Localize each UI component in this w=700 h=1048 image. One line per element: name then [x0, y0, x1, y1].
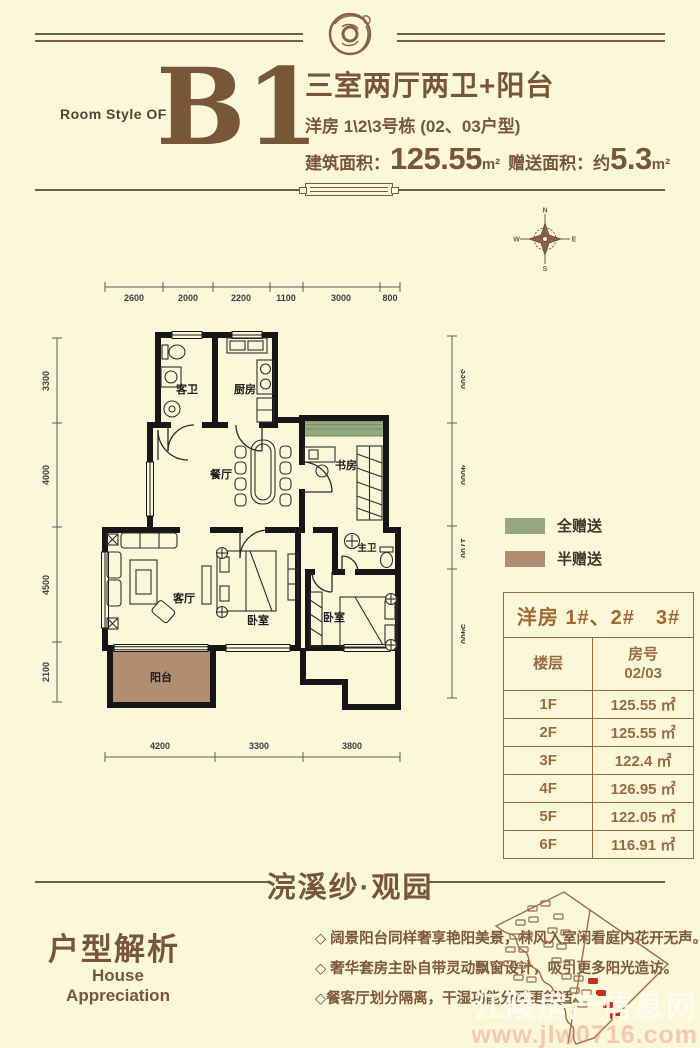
table-row: 4F 126.95 ㎡	[504, 775, 694, 803]
svg-text:4000: 4000	[459, 465, 465, 485]
svg-text:800: 800	[382, 293, 397, 303]
table-row: 2F 125.55 ㎡	[504, 719, 694, 747]
area-label: 建筑面积：	[305, 154, 390, 173]
room-label-dining: 餐厅	[209, 467, 232, 481]
room-label-study: 书房	[335, 458, 357, 472]
svg-text:4000: 4000	[41, 465, 51, 485]
compass-rose-icon: N E S W	[513, 206, 577, 272]
svg-text:4500: 4500	[41, 575, 51, 595]
door-swings	[158, 425, 358, 592]
svg-text:2600: 2600	[124, 293, 144, 303]
area-unit: m²	[482, 156, 500, 173]
col-header-room: 房号02/03	[593, 638, 694, 691]
compass-n: N	[542, 208, 547, 215]
gift-label: 赠送面积：	[508, 154, 593, 173]
watermark-url: www.jlw0716.com	[471, 1023, 698, 1048]
col-header-floor: 楼层	[504, 638, 593, 691]
dimension-labels: 2600 2000 2200 1100 3000 800 3300 4000 4…	[41, 293, 465, 751]
legend-half-gift: 半赠送	[505, 548, 602, 569]
svg-text:4200: 4200	[150, 741, 170, 751]
header-block: 三室两厅两卫+阳台 洋房 1\2\3号栋 (02、03户型) 建筑面积：125.…	[305, 64, 677, 177]
svg-text:3300: 3300	[249, 741, 269, 751]
analysis-title-en: House Appreciation	[48, 966, 188, 1005]
svg-text:3300: 3300	[459, 369, 465, 389]
top-rule-left	[35, 33, 303, 42]
compass-w: W	[513, 237, 520, 244]
table-row: 1F 125.55 ㎡	[504, 691, 694, 719]
room-style-label: Room Style OF	[60, 106, 167, 122]
table-row: 6F 116.91 ㎡	[504, 831, 694, 859]
svg-text:1100: 1100	[276, 293, 296, 303]
jade-seal-icon	[320, 6, 380, 64]
full-gift-swatch	[505, 518, 545, 534]
table-row: 5F 122.05 ㎡	[504, 803, 694, 831]
unit-subtitle: 洋房 1\2\3号栋 (02、03户型)	[305, 112, 677, 137]
svg-text:2100: 2100	[41, 662, 51, 682]
gift-prefix: 约	[593, 154, 610, 173]
room-label-bedroom-mid: 卧室	[247, 613, 269, 627]
watermark-site-name: 江陵房产信息网	[471, 992, 698, 1024]
divider-scroll-ornament	[305, 183, 393, 196]
top-rule-right	[397, 33, 665, 42]
floor-area-table: 洋房 1#、2# 3# 楼层 房号02/03 1F 125.55 ㎡ 2F 12…	[503, 592, 694, 859]
half-gift-label: 半赠送	[557, 548, 602, 569]
svg-text:3000: 3000	[331, 293, 351, 303]
svg-text:1700: 1700	[459, 538, 465, 558]
analysis-title: 户型解析	[48, 924, 180, 969]
table-row: 3F 122.4 ㎡	[504, 747, 694, 775]
svg-text:5400: 5400	[459, 624, 465, 644]
svg-text:2000: 2000	[178, 293, 198, 303]
svg-text:2200: 2200	[231, 293, 251, 303]
flyer-page: Room Style OF B1 三室两厅两卫+阳台 洋房 1\2\3号栋 (0…	[0, 0, 700, 1048]
gift-value: 5.3	[610, 141, 652, 176]
gift-unit: m²	[652, 156, 670, 173]
room-label-master-bath: 主卫	[357, 542, 377, 554]
room-label-guest-bath: 客卫	[175, 382, 198, 396]
room-label-balcony: 阳台	[150, 670, 172, 684]
legend-full-gift: 全赠送	[505, 515, 602, 536]
compass-e: E	[572, 237, 577, 244]
legend: 全赠送 半赠送	[505, 515, 602, 581]
floor-plan: 2600 2000 2200 1100 3000 800 3300 4000 4…	[40, 272, 465, 764]
area-value: 125.55	[390, 141, 482, 176]
compass-s: S	[543, 266, 548, 272]
svg-text:3300: 3300	[41, 371, 51, 391]
watermark: 江陵房产信息网 www.jlw0716.com	[471, 992, 698, 1048]
room-label-kitchen: 厨房	[234, 382, 256, 396]
full-gift-bay-area	[304, 421, 384, 436]
unit-title: 三室两厅两卫+阳台	[305, 64, 677, 104]
unit-code: B1	[156, 54, 319, 160]
half-gift-swatch	[505, 551, 545, 567]
table-title: 洋房 1#、2# 3#	[504, 593, 694, 638]
svg-text:3800: 3800	[342, 741, 362, 751]
room-label-bedroom-right: 卧室	[323, 610, 345, 624]
area-line: 建筑面积：125.55m²赠送面积：约5.3m²	[305, 141, 677, 177]
full-gift-label: 全赠送	[557, 515, 602, 536]
room-label-living: 客厅	[172, 591, 195, 605]
